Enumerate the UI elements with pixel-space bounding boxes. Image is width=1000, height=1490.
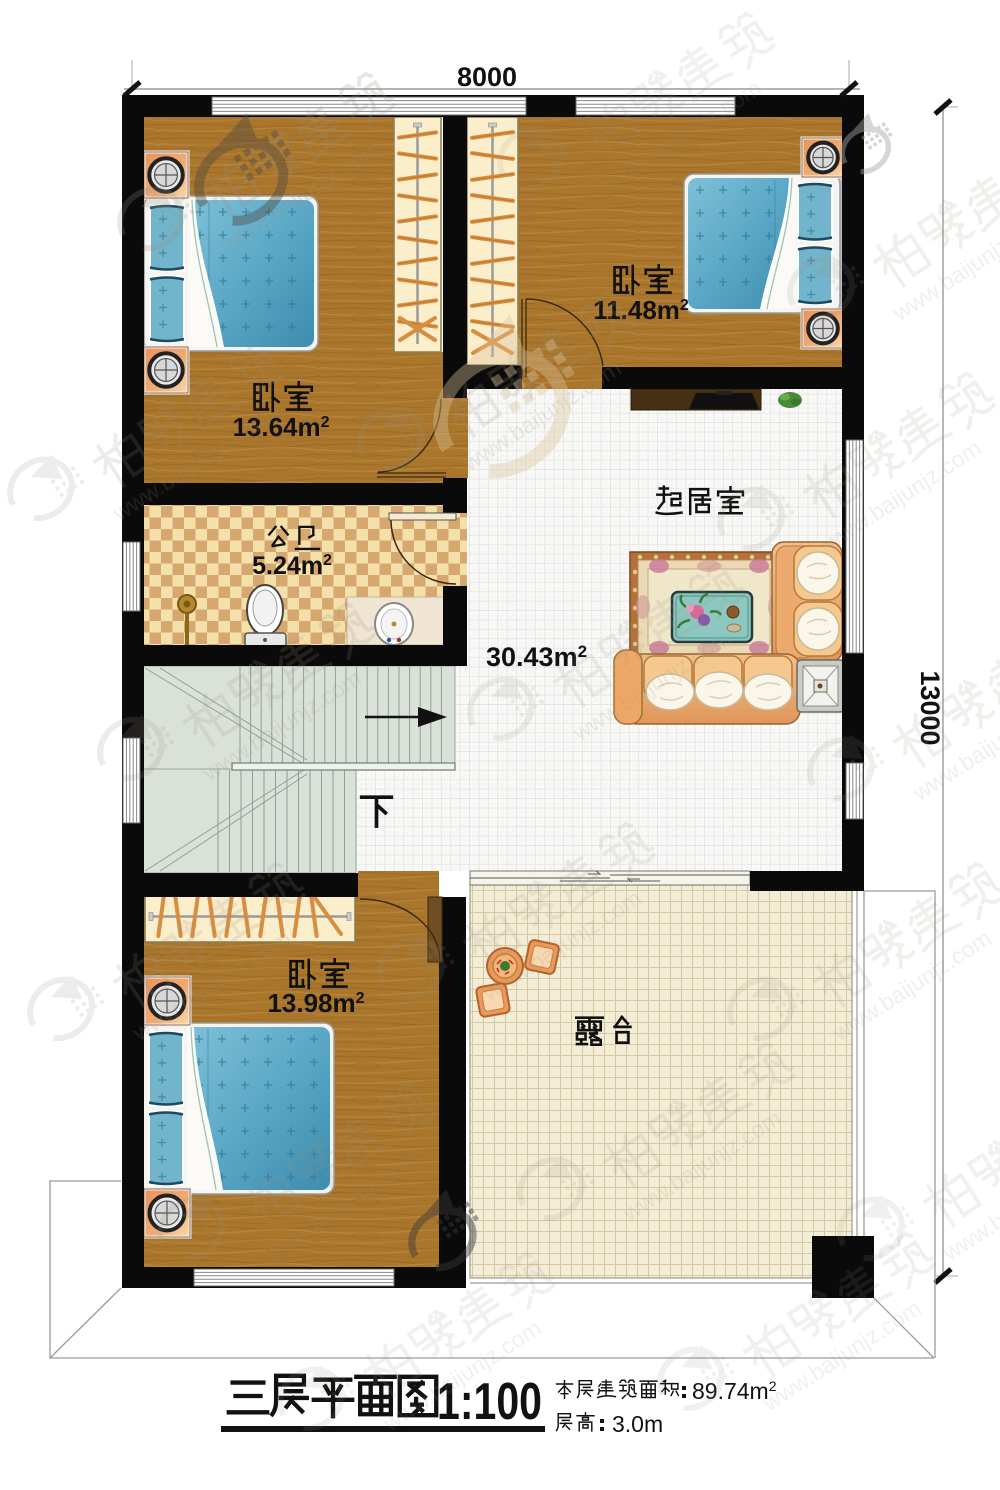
svg-text:8000: 8000 xyxy=(457,62,517,92)
svg-text:13.98m2: 13.98m2 xyxy=(267,988,364,1018)
svg-text:30.43m2: 30.43m2 xyxy=(486,642,587,672)
svg-text:11.48m2: 11.48m2 xyxy=(593,295,689,325)
svg-text:3.0m: 3.0m xyxy=(612,1411,663,1437)
svg-text:5.24m2: 5.24m2 xyxy=(252,552,332,580)
